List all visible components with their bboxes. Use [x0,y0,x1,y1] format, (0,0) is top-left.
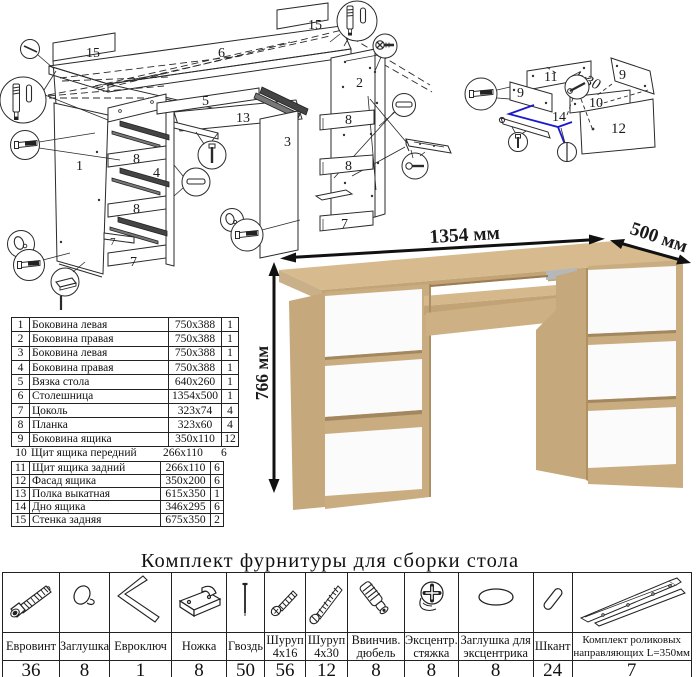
svg-text:7: 7 [341,217,348,232]
svg-text:12: 12 [611,121,626,137]
svg-text:15: 15 [86,46,100,61]
svg-text:8: 8 [133,152,140,167]
svg-text:8: 8 [133,202,140,217]
svg-text:9: 9 [517,86,524,101]
svg-text:1: 1 [76,159,83,174]
svg-text:8: 8 [345,159,352,174]
svg-text:7: 7 [130,255,137,270]
svg-text:14: 14 [552,110,566,125]
svg-text:13: 13 [236,111,250,126]
svg-text:9: 9 [619,68,626,83]
svg-text:1354 мм: 1354 мм [429,223,501,248]
svg-text:8: 8 [345,113,352,128]
svg-text:7: 7 [110,236,116,248]
svg-text:3: 3 [284,135,291,150]
svg-text:2: 2 [356,76,363,91]
svg-text:766 мм: 766 мм [252,346,272,401]
svg-text:5: 5 [202,94,209,109]
